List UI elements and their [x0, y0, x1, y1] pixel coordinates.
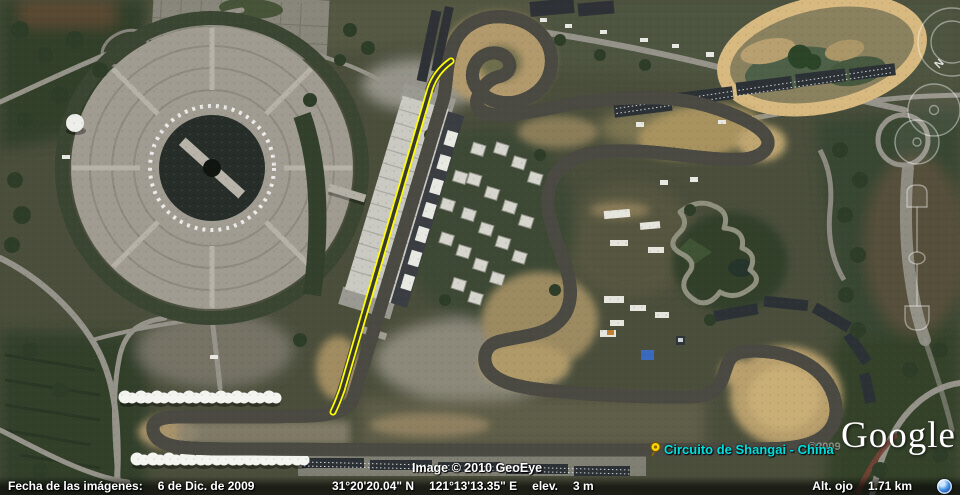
- placemark-label[interactable]: Circuito de Shangai - China: [664, 442, 834, 457]
- imagery-date-label: Fecha de las imágenes:: [8, 479, 143, 493]
- imagery-attribution: Image © 2010 GeoEye: [412, 461, 542, 475]
- google-earth-window: N ©2009 Google Image © 2010 GeoEye Circu…: [0, 0, 960, 495]
- status-bar: Fecha de las imágenes: 6 de Dic. de 2009…: [0, 476, 960, 495]
- move-joystick-control[interactable]: [895, 120, 939, 164]
- longitude-value: 121°13'13.35" E: [429, 479, 517, 493]
- placemark-pin-icon: [648, 441, 661, 457]
- eye-altitude-label: Alt. ojo: [812, 479, 853, 493]
- google-logo: Google: [841, 414, 956, 457]
- compass-north-label: N: [932, 57, 946, 71]
- latitude-value: 31°20'20.04" N: [332, 479, 414, 493]
- elevation-value: 3 m: [573, 479, 594, 493]
- zoom-slider-control[interactable]: [905, 185, 929, 330]
- eye-altitude-value: 1.71 km: [868, 479, 912, 493]
- image-noise: [0, 0, 960, 495]
- streaming-indicator-icon: [937, 479, 952, 494]
- satellite-map[interactable]: [0, 0, 960, 495]
- imagery-date-value: 6 de Dic. de 2009: [158, 479, 255, 493]
- elevation-label: elev.: [532, 479, 558, 493]
- placemark-circuito-shangai[interactable]: Circuito de Shangai - China: [648, 441, 834, 457]
- navigation-controls: N: [880, 0, 960, 345]
- zoom-slider-handle[interactable]: [909, 252, 925, 264]
- zoom-out-button[interactable]: [905, 306, 929, 330]
- zoom-in-button[interactable]: [907, 185, 927, 207]
